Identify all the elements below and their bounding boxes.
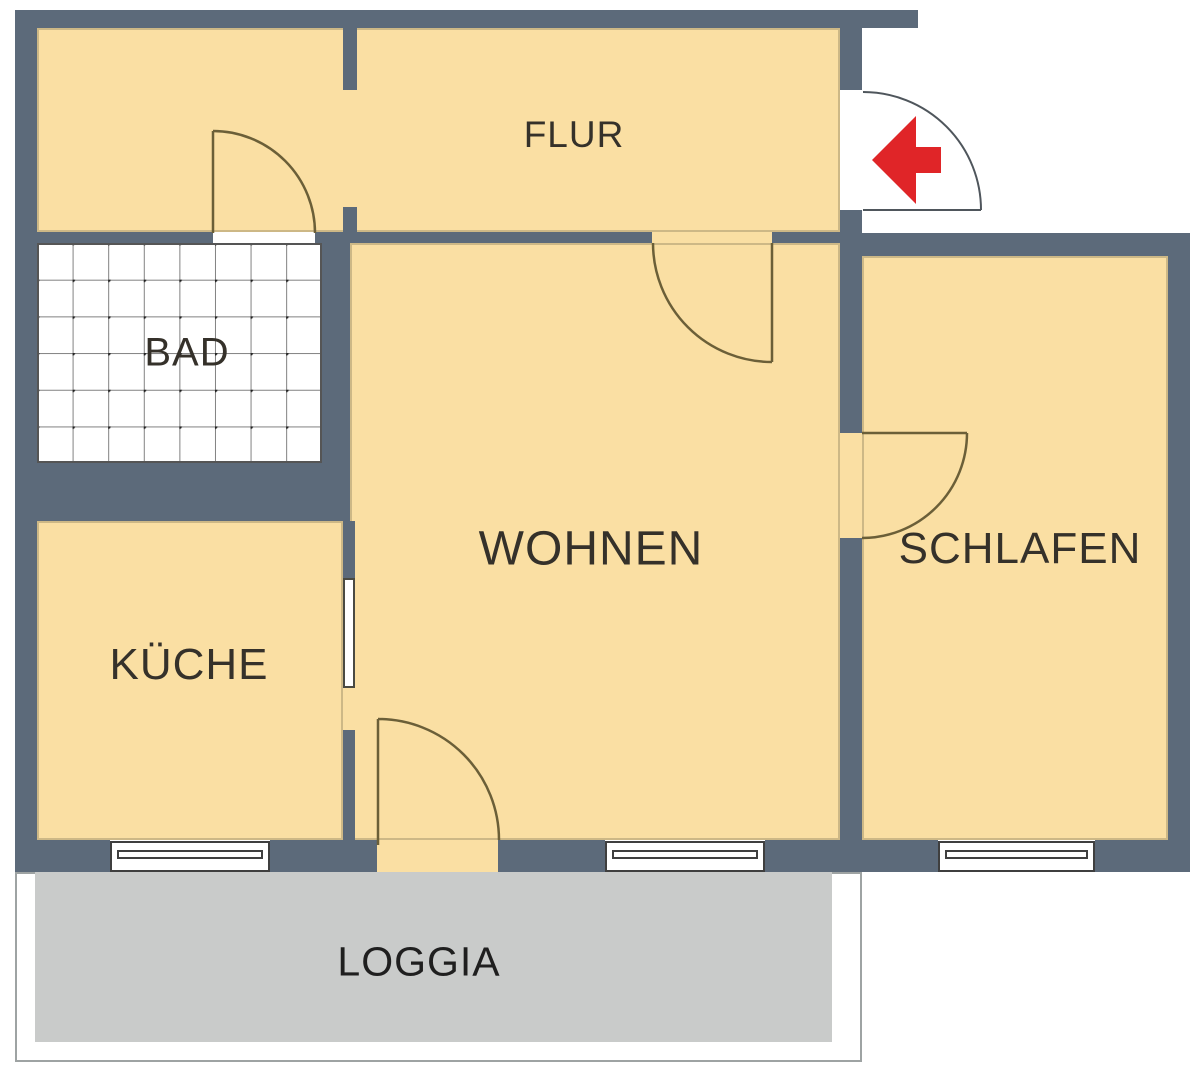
schlafen-window-pane: [945, 850, 1088, 859]
bad-door-opening: [213, 232, 315, 243]
wall-flur-bad-seg: [37, 232, 213, 243]
kueche-pass-through: [343, 578, 355, 688]
wall-flur-right-seg: [772, 232, 840, 243]
room-flur: [37, 28, 840, 232]
wall-bottom-seg2: [270, 840, 377, 872]
schlafen-window: [938, 841, 1095, 872]
wall-wohnen-schlafen-upper: [840, 233, 862, 433]
entrance-door-arc: [863, 92, 981, 210]
wall-left: [15, 10, 37, 872]
wall-schlafen-top: [840, 233, 1190, 256]
wall-entrance-stub-bottom: [840, 210, 862, 233]
wall-bottom-seg5: [1095, 840, 1190, 872]
wall-bad-bottom: [15, 463, 350, 521]
label-bad: BAD: [144, 331, 229, 376]
wall-top: [15, 10, 918, 28]
wall-entrance-stub-top: [840, 28, 862, 90]
wohnen-window-pane: [612, 850, 758, 859]
wall-flur-mid-seg: [315, 232, 652, 243]
wall-wohnen-schlafen-lower: [840, 538, 862, 840]
wall-bottom-seg4: [765, 840, 938, 872]
label-loggia: LOGGIA: [337, 939, 500, 986]
wall-right: [1168, 233, 1190, 872]
wall-bottom-seg3: [498, 840, 605, 872]
kueche-window: [110, 841, 270, 872]
wohnen-door-opening: [652, 232, 772, 243]
entrance-arrow-icon: [872, 116, 941, 204]
label-kueche: KÜCHE: [109, 640, 268, 690]
floor-plan: FLUR BAD KÜCHE WOHNEN SCHLAFEN LOGGIA: [0, 0, 1200, 1077]
wall-bottom-seg1: [15, 840, 110, 872]
schlafen-door-opening: [840, 433, 862, 538]
label-schlafen: SCHLAFEN: [899, 524, 1142, 574]
wall-kueche-right-upper: [343, 521, 355, 578]
loggia-door-opening: [377, 840, 498, 872]
wall-kueche-right-lower: [343, 730, 355, 840]
wall-junction-stub: [343, 207, 357, 232]
kueche-opening: [343, 688, 355, 730]
label-flur: FLUR: [524, 114, 625, 156]
wohnen-window: [605, 841, 765, 872]
wall-bad-right: [322, 232, 350, 463]
wall-flur-top-stub: [343, 28, 357, 90]
label-wohnen: WOHNEN: [479, 522, 704, 577]
kueche-window-pane: [117, 850, 263, 859]
